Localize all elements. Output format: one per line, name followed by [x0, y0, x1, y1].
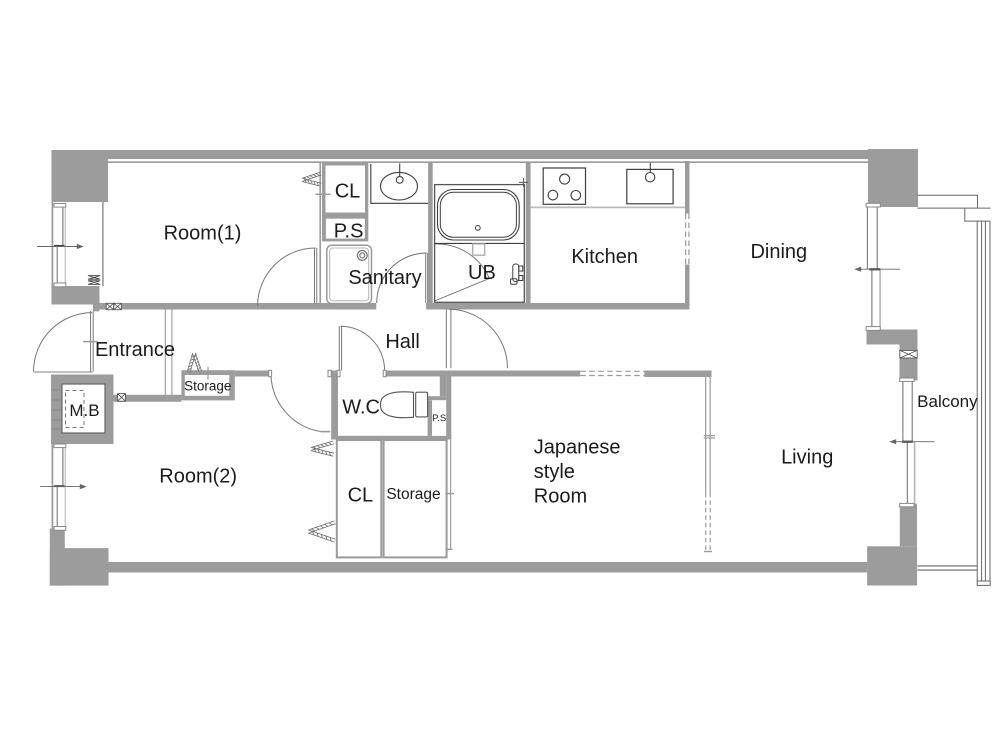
- svg-text:Storage: Storage: [386, 486, 440, 503]
- svg-text:W.C: W.C: [342, 397, 380, 419]
- svg-text:P.S: P.S: [334, 221, 364, 243]
- svg-text:Living: Living: [781, 447, 833, 469]
- svg-text:UB: UB: [468, 262, 496, 284]
- svg-text:Room(1): Room(1): [164, 223, 242, 245]
- svg-text:Kitchen: Kitchen: [571, 246, 638, 268]
- svg-text:Japanese: Japanese: [534, 437, 621, 459]
- svg-text:Storage: Storage: [184, 379, 231, 394]
- svg-text:M.B: M.B: [69, 401, 99, 420]
- svg-text:Sanitary: Sanitary: [348, 267, 421, 289]
- svg-text:CL: CL: [335, 181, 361, 203]
- svg-text:Room(2): Room(2): [159, 466, 237, 488]
- svg-text:Balcony: Balcony: [917, 392, 978, 411]
- svg-text:Room: Room: [534, 486, 587, 508]
- svg-text:P.S: P.S: [432, 413, 446, 424]
- svg-text:Entrance: Entrance: [95, 339, 175, 361]
- svg-text:CL: CL: [348, 485, 374, 507]
- svg-text:Hall: Hall: [385, 331, 419, 353]
- svg-text:Dining: Dining: [750, 241, 807, 263]
- svg-text:style: style: [534, 461, 575, 483]
